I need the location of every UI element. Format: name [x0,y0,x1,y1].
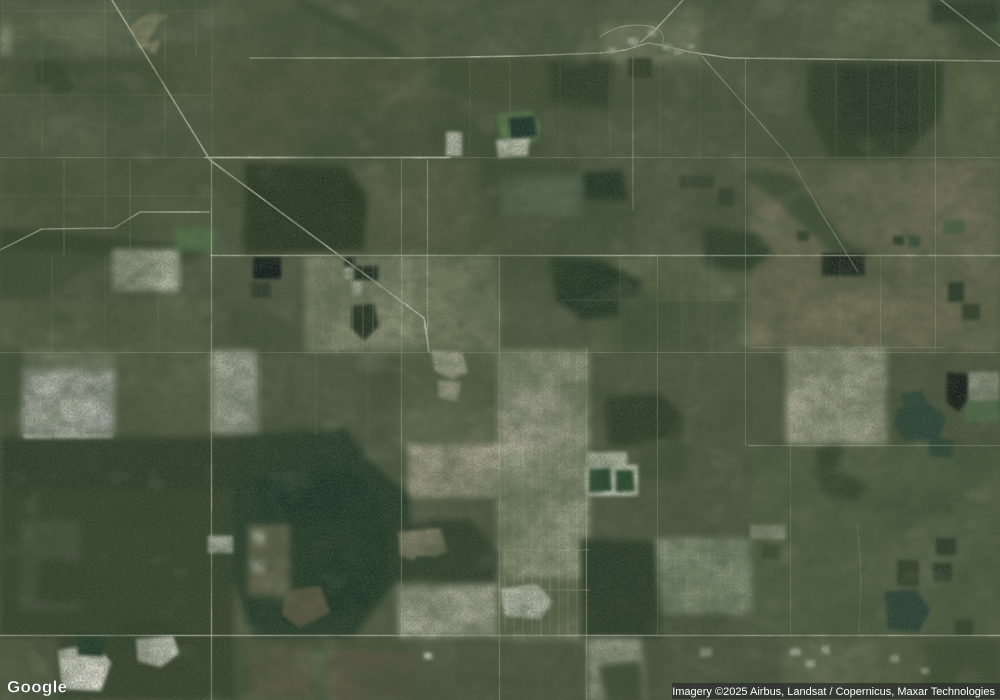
svg-text:Imagery ©2025 Airbus, Landsat: Imagery ©2025 Airbus, Landsat / Copernic… [672,686,995,698]
svg-text:Google: Google [7,678,67,697]
